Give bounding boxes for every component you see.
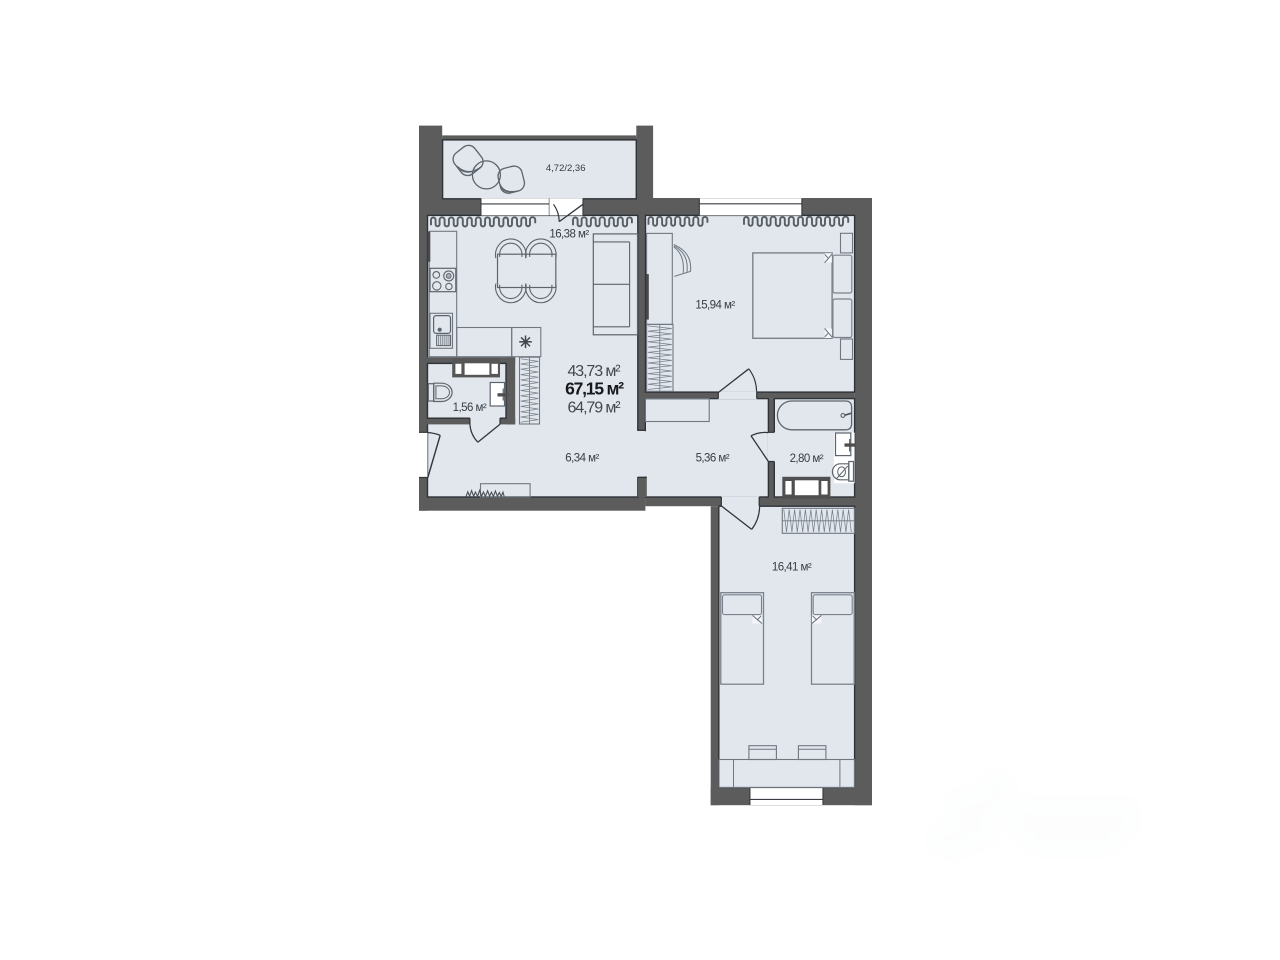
svg-text:5,36 м²: 5,36 м² [696,453,730,465]
svg-text:64,79 м²: 64,79 м² [567,400,621,417]
svg-text:43,73 м²: 43,73 м² [567,363,621,380]
svg-text:15,94 м²: 15,94 м² [695,300,735,312]
svg-text:67,15 м²: 67,15 м² [565,379,624,399]
svg-text:16,38 м²: 16,38 м² [549,228,589,240]
svg-text:2,80 м²: 2,80 м² [790,453,824,465]
svg-text:4,72/2,36: 4,72/2,36 [546,163,586,174]
svg-text:16,41 м²: 16,41 м² [772,562,812,574]
svg-text:1,56 м²: 1,56 м² [453,402,487,414]
svg-text:6,34 м²: 6,34 м² [565,453,599,465]
